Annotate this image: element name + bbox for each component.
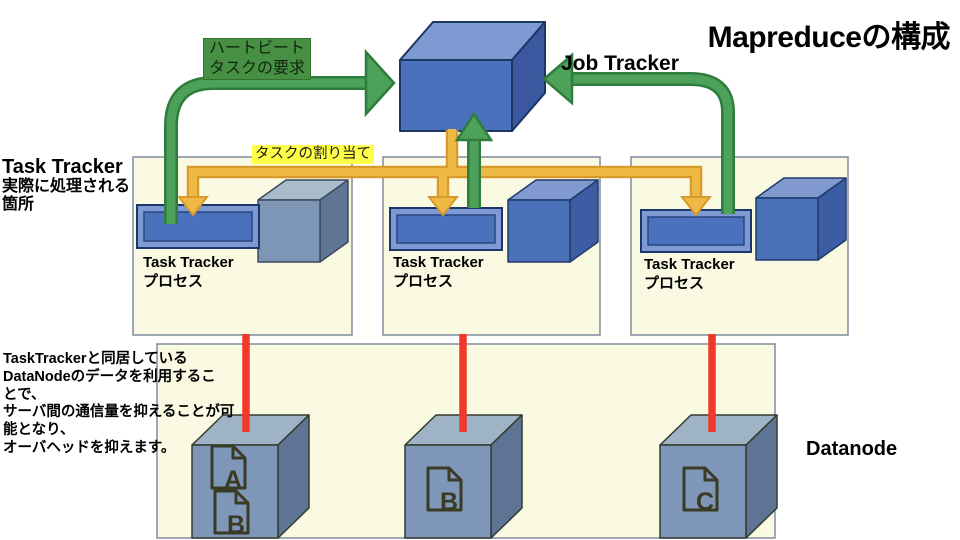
process-plate-3-face: [648, 217, 744, 245]
tracker-cube-2-front: [508, 200, 570, 262]
tracker-1-label: Task Tracker プロセス: [143, 253, 234, 291]
heartbeat-label-line2: タスクの要求: [209, 59, 305, 79]
note-line-2: DataNodeのデータを利用するこ: [3, 369, 338, 387]
task-assignment-label: タスクの割り当て: [252, 145, 374, 164]
mapreduce-diagram: A B B C Mapreduceの構成 Job Tracker ハートビート …: [0, 0, 960, 540]
heartbeat-arrowhead: [366, 52, 394, 114]
tracker-3-label-line1: Task Tracker: [644, 255, 735, 274]
tracker-cube-1: [258, 180, 348, 262]
left-heading-line2: 実際に処理される: [2, 178, 130, 196]
doc-icon-b2-letter: B: [440, 488, 458, 516]
tracker-1-label-line2: プロセス: [143, 272, 234, 291]
left-heading-line1: Task Tracker: [2, 156, 130, 178]
note-line-1: TaskTrackerと同居している: [3, 351, 338, 369]
job-tracker-label: Job Tracker: [561, 52, 679, 76]
tracker-3-label: Task Tracker プロセス: [644, 255, 735, 293]
left-heading-line3: 箇所: [2, 196, 130, 214]
note-line-5: 能となり、: [3, 422, 338, 440]
note-line-6: オーバヘッドを抑えます。: [3, 440, 338, 458]
datanode-cube-2: [405, 415, 522, 538]
heartbeat-label: ハートビート タスクの要求: [203, 38, 311, 80]
data-locality-note: TaskTrackerと同居している DataNodeのデータを利用するこ とで…: [3, 351, 338, 458]
doc-icon-b1-letter: B: [227, 511, 245, 539]
tracker-2-label: Task Tracker プロセス: [393, 253, 484, 291]
tracker-cube-3-front: [756, 198, 818, 260]
doc-icon-c-letter: C: [696, 488, 714, 516]
tracker-3-label-line2: プロセス: [644, 274, 735, 293]
page-title: Mapreduceの構成: [595, 12, 950, 56]
note-line-4: サーバ間の通信量を抑えることが可: [3, 404, 338, 422]
process-plate-2-face: [397, 215, 495, 243]
note-line-3: とで、: [3, 387, 338, 405]
process-plate-1-face: [144, 212, 252, 241]
heartbeat-label-line1: ハートビート: [209, 39, 305, 59]
tracker-2-label-line2: プロセス: [393, 272, 484, 291]
process-plate-1: [137, 205, 259, 248]
process-plate-2: [390, 208, 502, 250]
left-heading: Task Tracker 実際に処理される 箇所: [2, 156, 130, 214]
datanode-cube-3: [660, 415, 777, 538]
tracker-cube-3: [756, 178, 846, 260]
tracker-2-label-line1: Task Tracker: [393, 253, 484, 272]
datanode-label: Datanode: [806, 438, 897, 461]
tracker-1-label-line1: Task Tracker: [143, 253, 234, 272]
tracker-cube-1-front: [258, 200, 320, 262]
tracker-cube-2: [508, 180, 598, 262]
job-tracker-cube-front-face: [400, 60, 512, 131]
